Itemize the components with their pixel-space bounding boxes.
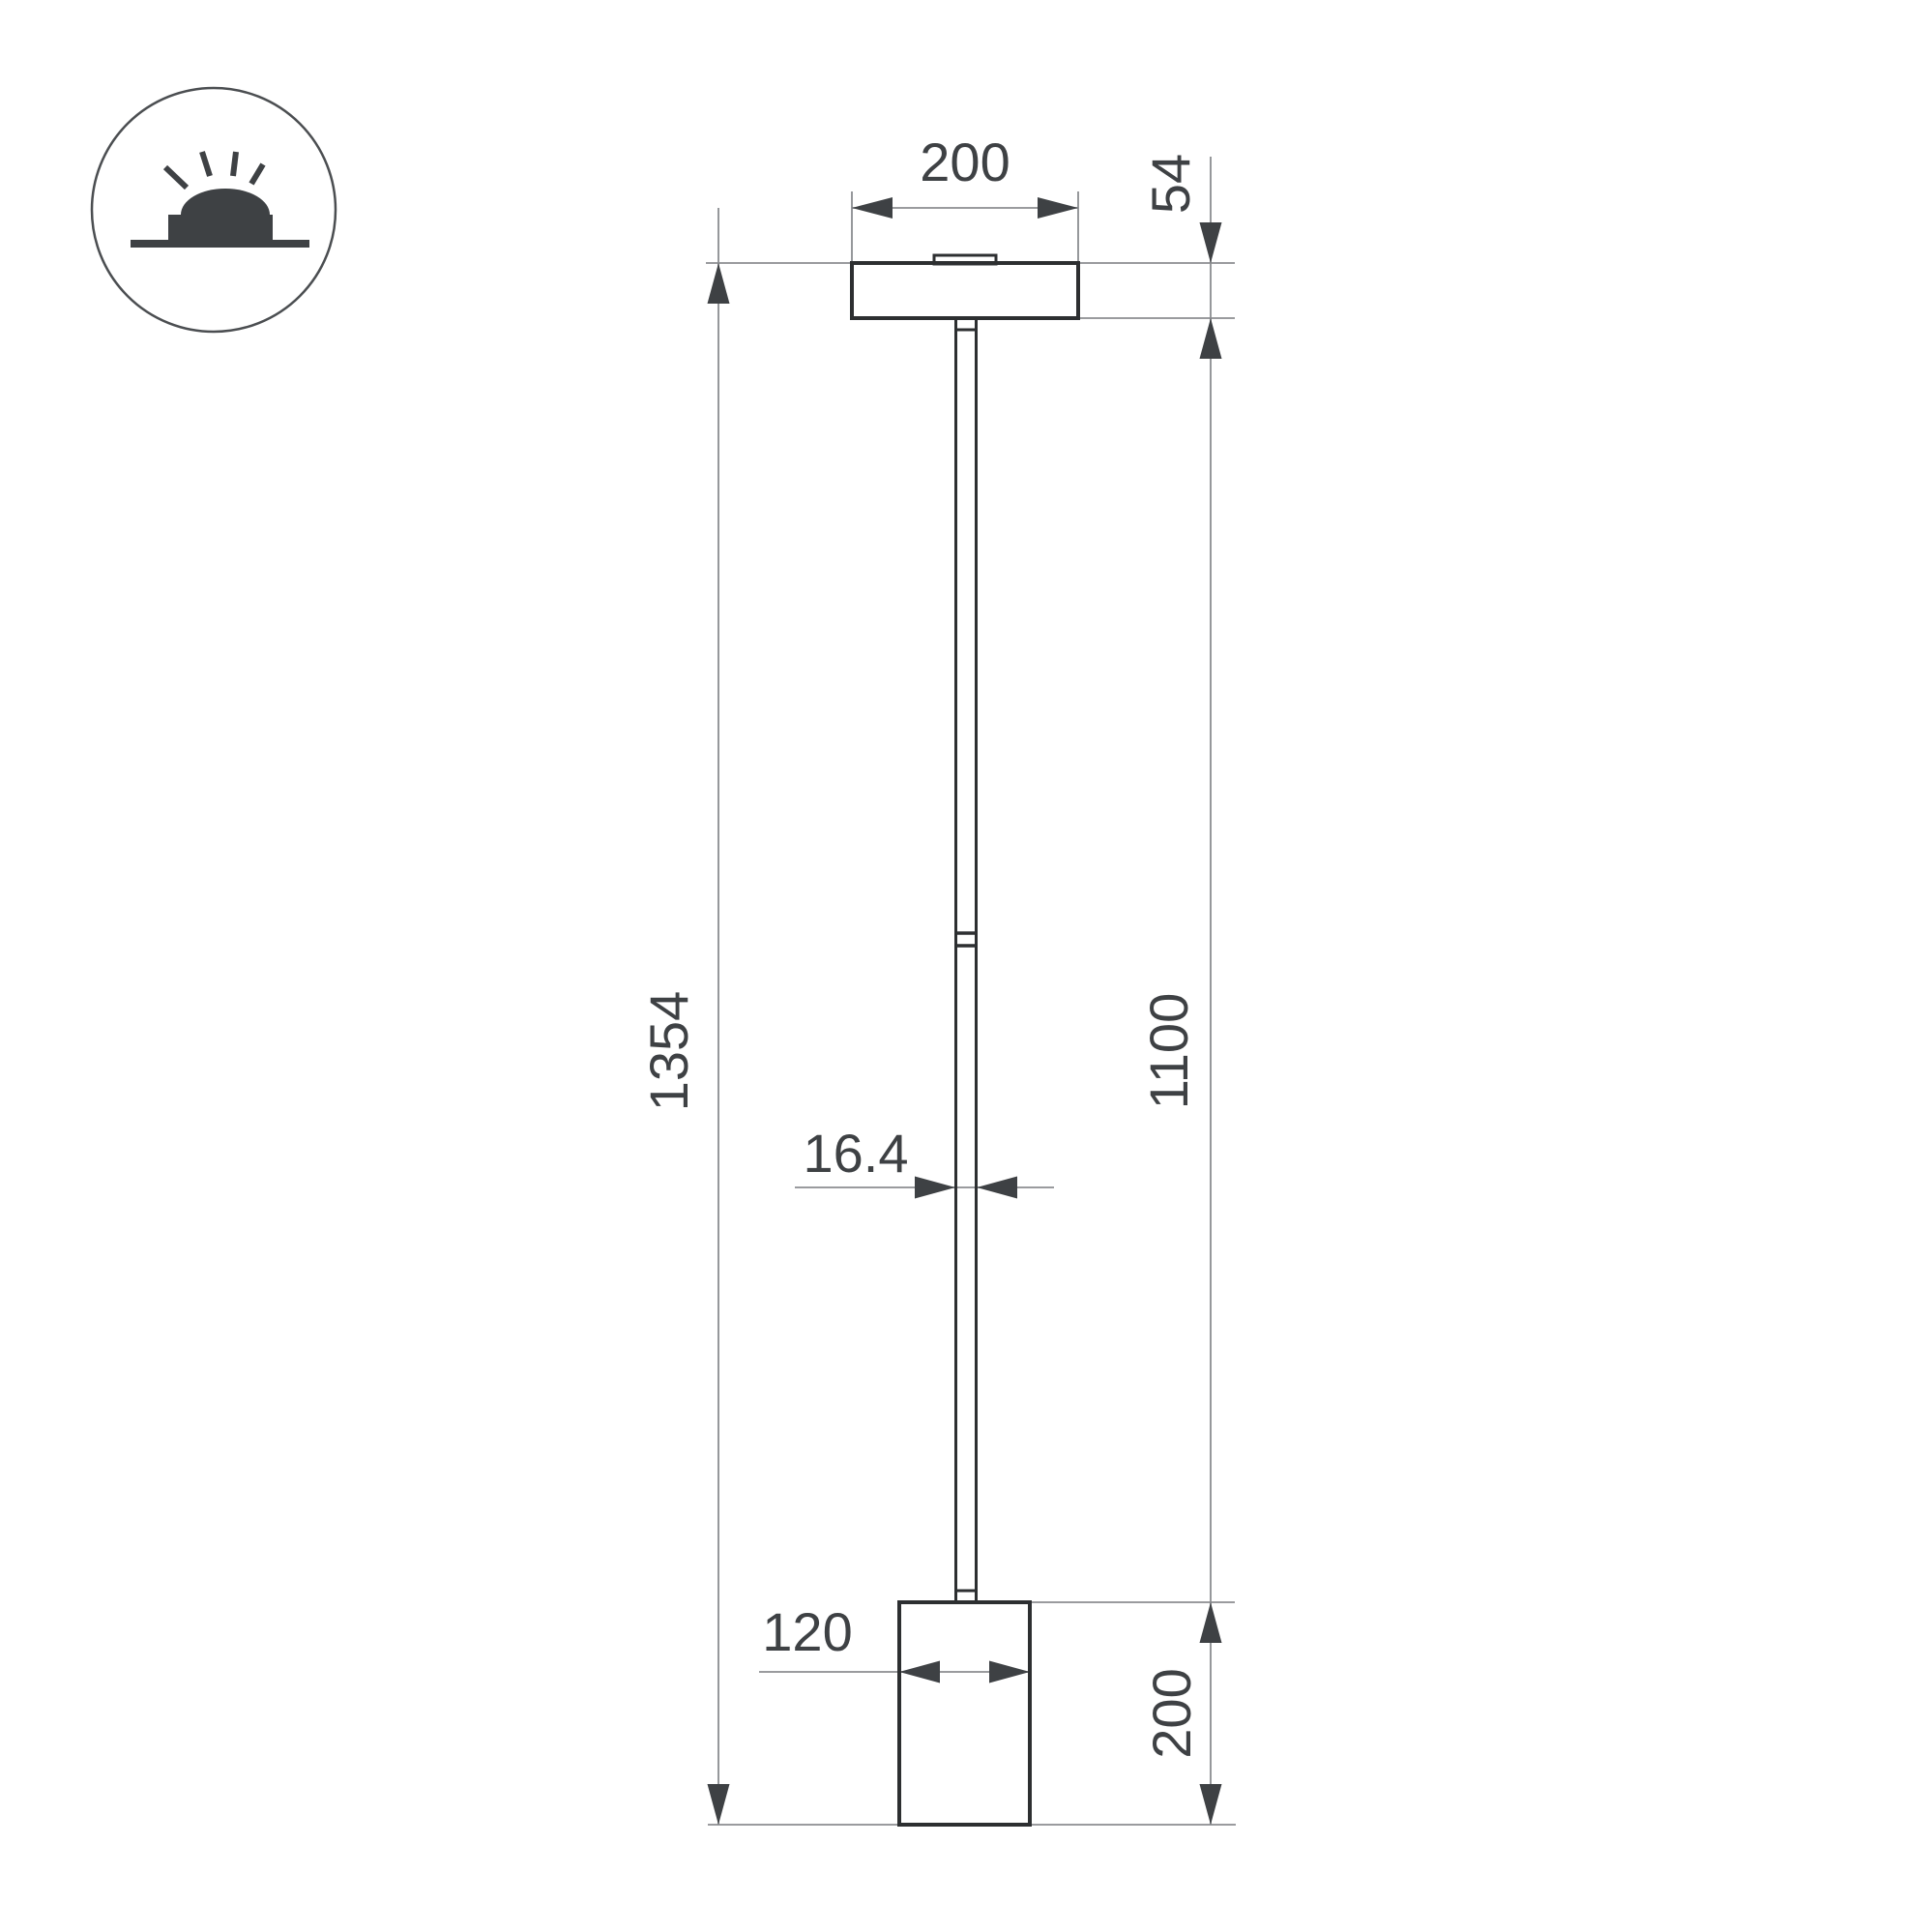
arrow-canopy-height-top: [1200, 222, 1222, 263]
arrow-head-height-top: [1200, 1602, 1222, 1643]
arrow-overall-bottom: [708, 1784, 730, 1825]
icon-fixture-body: [168, 215, 273, 240]
label-rod-length: 1100: [1138, 993, 1199, 1109]
luminaire-outline: [852, 255, 1078, 1825]
lamp-head-cylinder: [899, 1602, 1030, 1825]
luminaire-dimension-drawing: 200 54 1354 1100 16.4 120 200: [0, 0, 1932, 1932]
ceiling-canopy: [852, 263, 1078, 318]
arrow-rod-diameter-right: [977, 1177, 1017, 1199]
icon-light-ray: [233, 152, 236, 176]
label-head-width: 120: [762, 1601, 852, 1662]
label-head-height: 200: [1141, 1668, 1202, 1758]
icon-lamp-dome: [181, 189, 270, 215]
icon-light-ray: [251, 164, 263, 184]
arrow-canopy-width-left: [852, 197, 893, 219]
dimension-labels: 200 54 1354 1100 16.4 120 200: [638, 132, 1202, 1759]
arrow-head-width-left: [899, 1661, 940, 1683]
surface-mounted-luminaire-icon: [92, 88, 336, 332]
dimension-lines: [706, 157, 1236, 1825]
icon-light-ray: [165, 167, 187, 188]
label-overall-height: 1354: [638, 991, 699, 1112]
arrow-head-width-right: [989, 1661, 1030, 1683]
label-rod-diameter: 16.4: [804, 1123, 909, 1184]
arrow-canopy-height-bottom: [1200, 318, 1222, 359]
arrow-rod-diameter-left: [915, 1177, 955, 1199]
icon-light-ray: [202, 152, 210, 176]
arrow-overall-top: [708, 263, 730, 304]
arrow-head-height-bottom: [1200, 1784, 1222, 1825]
arrow-canopy-width-right: [1038, 197, 1078, 219]
technical-drawing-page: 200 54 1354 1100 16.4 120 200: [0, 0, 1932, 1932]
label-canopy-height: 54: [1140, 154, 1201, 214]
label-canopy-width: 200: [920, 132, 1010, 192]
